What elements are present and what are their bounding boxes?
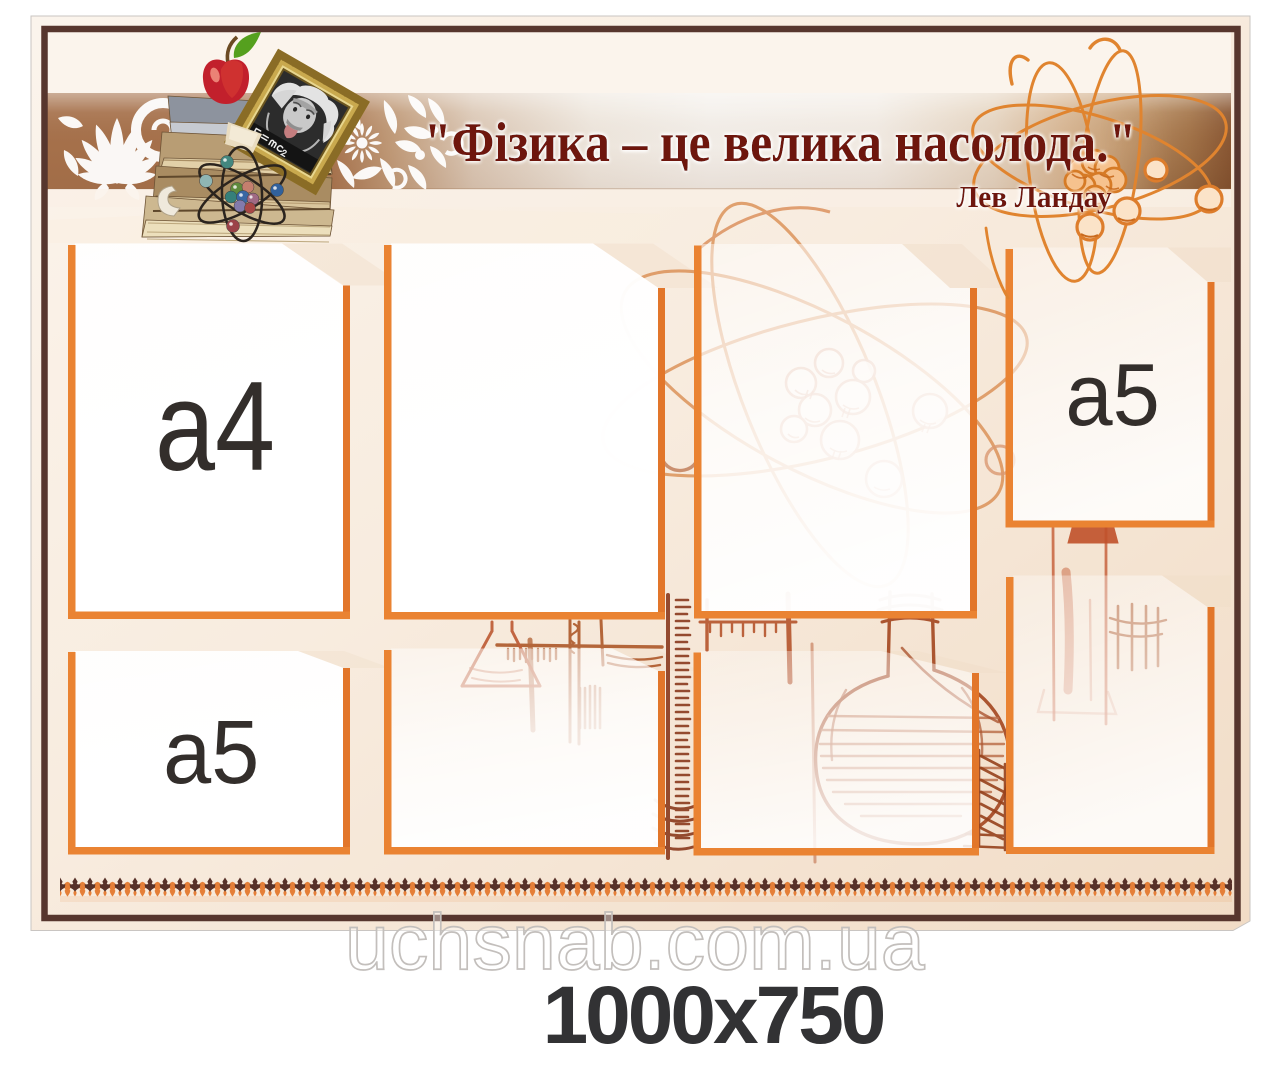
svg-text:a5: a5 [1065, 347, 1159, 445]
svg-text:a4: a4 [155, 355, 275, 497]
svg-text:Лев Ландау: Лев Ландау [956, 179, 1111, 214]
svg-text:"Фізика – це велика насолода.": "Фізика – це велика насолода." [424, 112, 1136, 173]
svg-text:1000x750: 1000x750 [543, 970, 884, 1061]
svg-text:a5: a5 [163, 701, 259, 802]
